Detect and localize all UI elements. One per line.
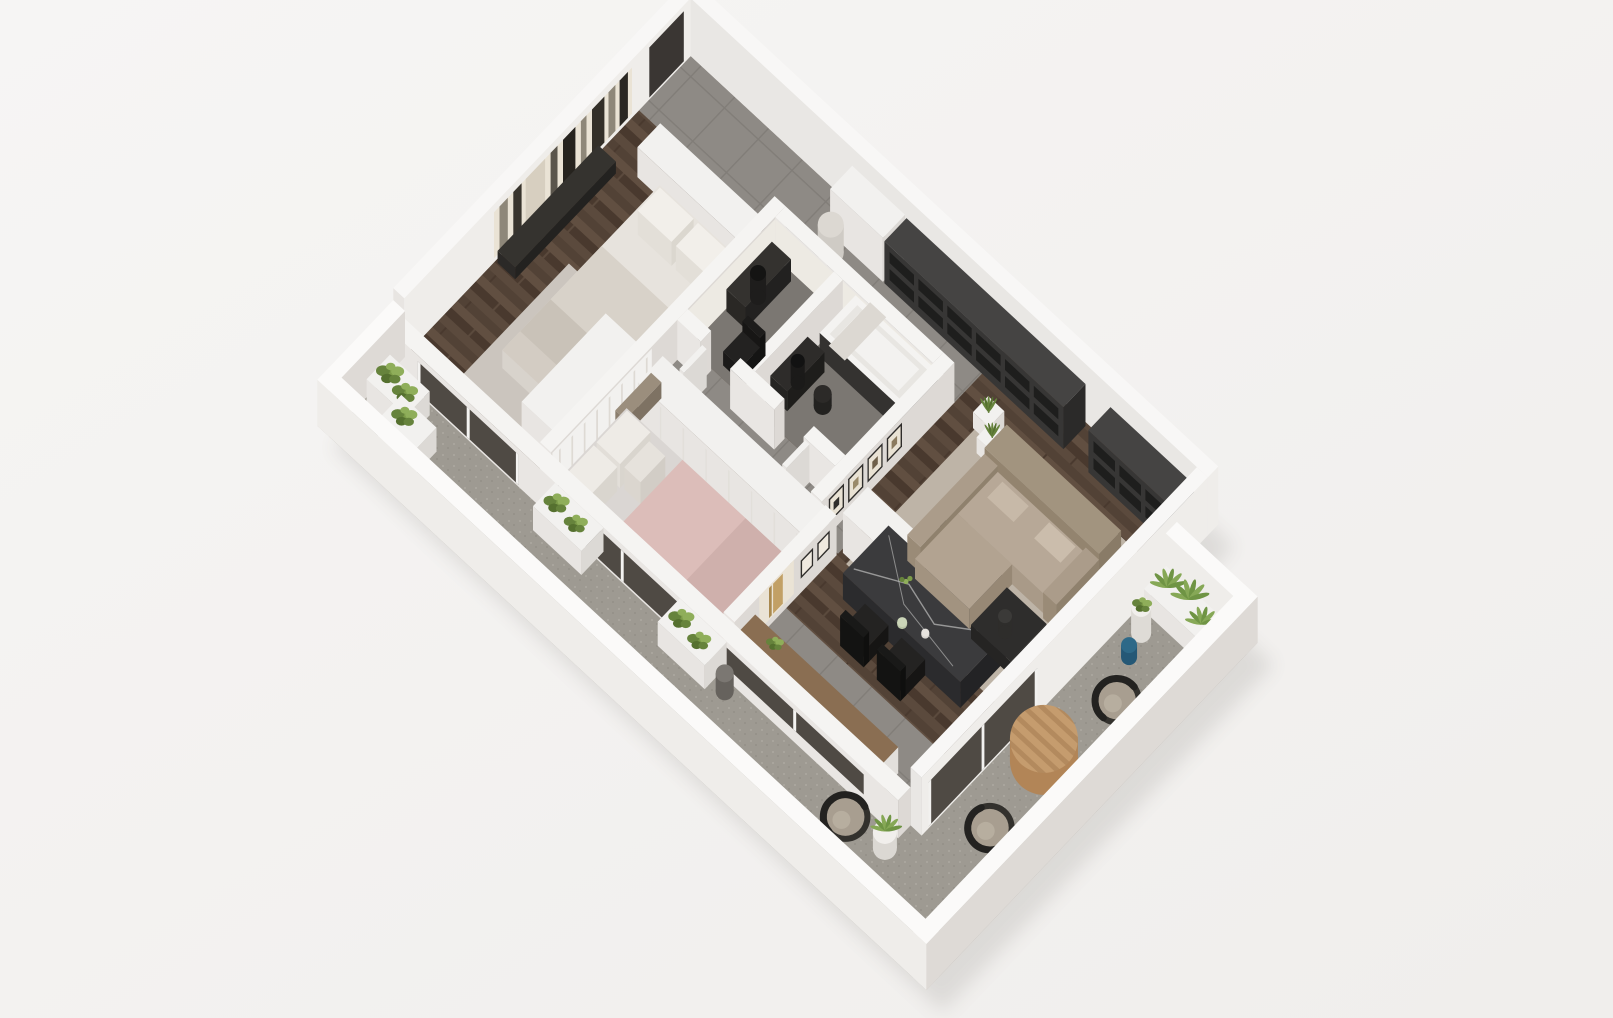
corner-planter-b-plant-leaf [403,418,413,426]
wc-basin [750,265,766,281]
counter-plant-leaf [774,644,781,650]
bath-stool [814,385,832,403]
wardrobe2-door-seams [751,491,752,524]
terrace-armchair-3-seat-pad [832,811,850,829]
wardrobe2-door-seams [728,470,730,503]
headboard-panel-seams [571,435,573,469]
coffee-table-tray-base [998,625,1012,639]
balcony-plant-2b-leaf [575,525,585,532]
laundry-basket [818,212,844,238]
bd1-frame-c [516,452,519,485]
wardrobe2-door-seams [705,449,706,482]
bd2-frame-b [621,550,624,583]
steel-pot [716,664,734,682]
terrace-door-frame-b [982,724,985,771]
headboard-panel-seams [609,396,611,430]
corner-planter-a-plant-1-leaf [389,375,400,384]
coffee-table-tray [998,609,1012,623]
table-centerpiece-leaf [907,576,912,581]
floorplan-canvas [0,0,1613,1018]
wardrobe2-door-seams [683,428,685,461]
terrace-door-frame-c [929,780,932,827]
counter-plant-leaf [772,637,778,642]
table-dish-1 [897,617,907,627]
balcony-plant-2b-leaf [572,515,580,521]
balcony-plant-1a-leaf [677,609,686,616]
mural-stripe-2 [609,85,616,138]
bd1-frame-b [467,407,470,440]
balcony-plant-2a-leaf [553,493,562,500]
kitchen-window-frame [793,709,796,732]
isometric-floorplan-svg [0,0,1613,1018]
wardrobe2-door-seams [774,512,776,545]
corner-planter-a-plant-1-leaf [386,363,396,370]
headboard-panel-seams [584,422,586,456]
corner-planter-b-plant-leaf [400,407,409,414]
wardrobe2-door-seams [660,407,661,440]
balcony-plant-1b-leaf [696,632,704,638]
wc-basin-base [750,289,766,305]
dining-chair-sw2-back-face-se [900,666,906,702]
wall-southeast-face-sw [911,767,922,835]
terrace-armchair-1-seat-pad [1104,694,1122,712]
terrace-round-table [1010,705,1078,773]
mural-stripe-1 [620,72,628,127]
balcony-plant-1a-leaf [681,620,691,628]
gold-art-line [769,585,772,618]
wall-northeast-face-se [1208,467,1218,536]
stand-plant-leaf [1139,597,1146,602]
blue-pot [1121,637,1137,653]
headboard-panel-seams [596,409,598,443]
stand-plant-leaf [1141,606,1149,612]
dining-chair-sw1-back-face-se [864,632,870,668]
balcony-plant-1b-leaf [698,642,708,649]
steel-pot-base [716,682,734,700]
table-centerpiece-leaf [899,577,904,582]
table-dish-2 [921,629,929,637]
terrace-armchair-2-seat-pad [977,822,995,840]
corner-planter-a-plant-2-leaf [401,383,410,390]
bath-vanity-basin-base [791,376,805,390]
bath-vanity-basin [791,354,805,368]
balcony-plant-2a-leaf [556,504,566,512]
